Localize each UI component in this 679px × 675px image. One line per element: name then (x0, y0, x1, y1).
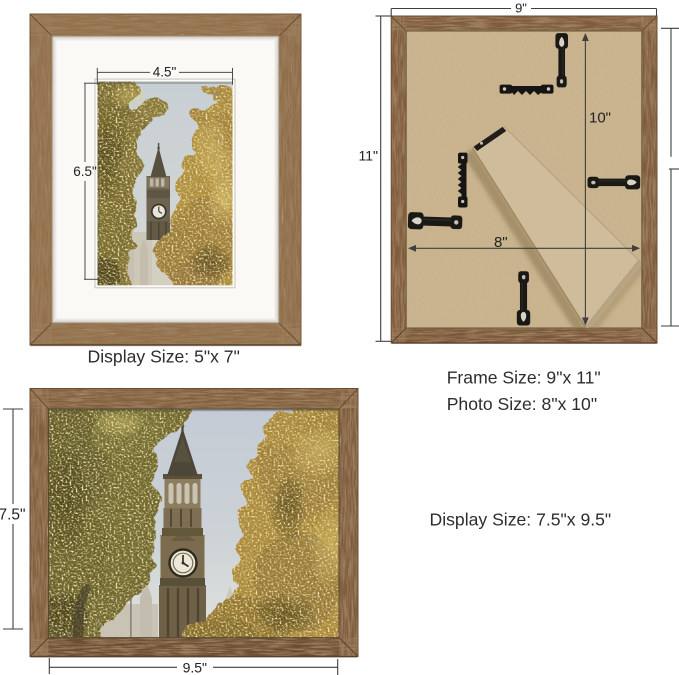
svg-text:9": 9" (515, 0, 527, 15)
svg-text:Photo Size: 8"x 10": Photo Size: 8"x 10" (447, 394, 597, 414)
svg-text:4.5": 4.5" (153, 64, 177, 79)
svg-text:Display Size: 7.5"x 9.5": Display Size: 7.5"x 9.5" (430, 510, 612, 530)
svg-text:11": 11" (358, 148, 378, 164)
svg-text:9.5": 9.5" (183, 659, 207, 675)
svg-text:6.5": 6.5" (73, 164, 97, 179)
svg-text:Frame Size: 9"x 11": Frame Size: 9"x 11" (447, 368, 601, 388)
svg-text:Display Size: 5"x 7": Display Size: 5"x 7" (88, 347, 240, 367)
svg-text:10": 10" (589, 110, 611, 127)
svg-text:8": 8" (494, 234, 508, 251)
svg-text:7.5": 7.5" (0, 507, 26, 524)
